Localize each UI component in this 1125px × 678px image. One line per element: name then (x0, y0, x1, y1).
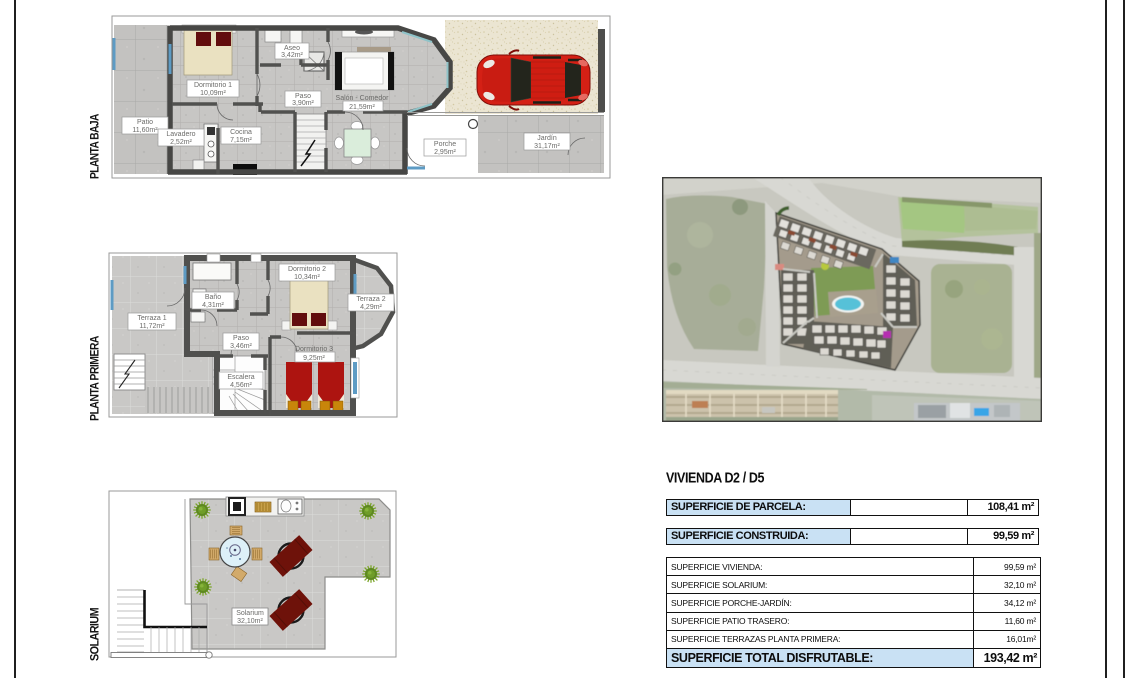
svg-text:4,31m²: 4,31m² (202, 302, 224, 309)
svg-text:Patio: Patio (137, 119, 153, 126)
svg-text:31,17m²: 31,17m² (534, 143, 560, 150)
svg-text:Dormitorio 1: Dormitorio 1 (194, 82, 232, 89)
svg-text:Porche: Porche (434, 141, 456, 148)
svg-text:Solarium: Solarium (236, 610, 264, 617)
svg-text:Baño: Baño (205, 294, 221, 301)
svg-text:10,34m²: 10,34m² (294, 274, 320, 281)
svg-text:11,72m²: 11,72m² (139, 323, 165, 330)
svg-text:3,46m²: 3,46m² (230, 343, 252, 350)
svg-text:4,29m²: 4,29m² (360, 304, 382, 311)
svg-text:Cocina: Cocina (230, 129, 252, 136)
svg-text:4,56m²: 4,56m² (230, 382, 252, 389)
svg-text:Salón - Comedor: Salón - Comedor (336, 95, 390, 102)
svg-text:11,60m²: 11,60m² (132, 127, 158, 134)
svg-text:21,59m²: 21,59m² (349, 104, 375, 111)
svg-text:9,25m²: 9,25m² (303, 355, 325, 362)
svg-text:Aseo: Aseo (284, 45, 300, 52)
svg-text:Dormitorio 3: Dormitorio 3 (295, 346, 333, 353)
svg-text:Paso: Paso (295, 93, 311, 100)
svg-text:2,95m²: 2,95m² (434, 149, 456, 156)
svg-text:Jardín: Jardín (537, 135, 557, 142)
svg-text:Terraza 1: Terraza 1 (137, 315, 166, 322)
svg-text:2,52m²: 2,52m² (170, 139, 192, 146)
svg-text:3,90m²: 3,90m² (292, 100, 314, 107)
svg-text:Escalera: Escalera (227, 374, 254, 381)
svg-text:Lavadero: Lavadero (166, 131, 195, 138)
svg-text:32,10m²: 32,10m² (237, 618, 263, 625)
svg-text:10,09m²: 10,09m² (200, 90, 226, 97)
svg-text:Terraza 2: Terraza 2 (356, 296, 385, 303)
svg-text:Dormitorio 2: Dormitorio 2 (288, 266, 326, 273)
svg-text:3,42m²: 3,42m² (281, 52, 303, 59)
svg-text:7,15m²: 7,15m² (230, 137, 252, 144)
svg-text:Paso: Paso (233, 335, 249, 342)
